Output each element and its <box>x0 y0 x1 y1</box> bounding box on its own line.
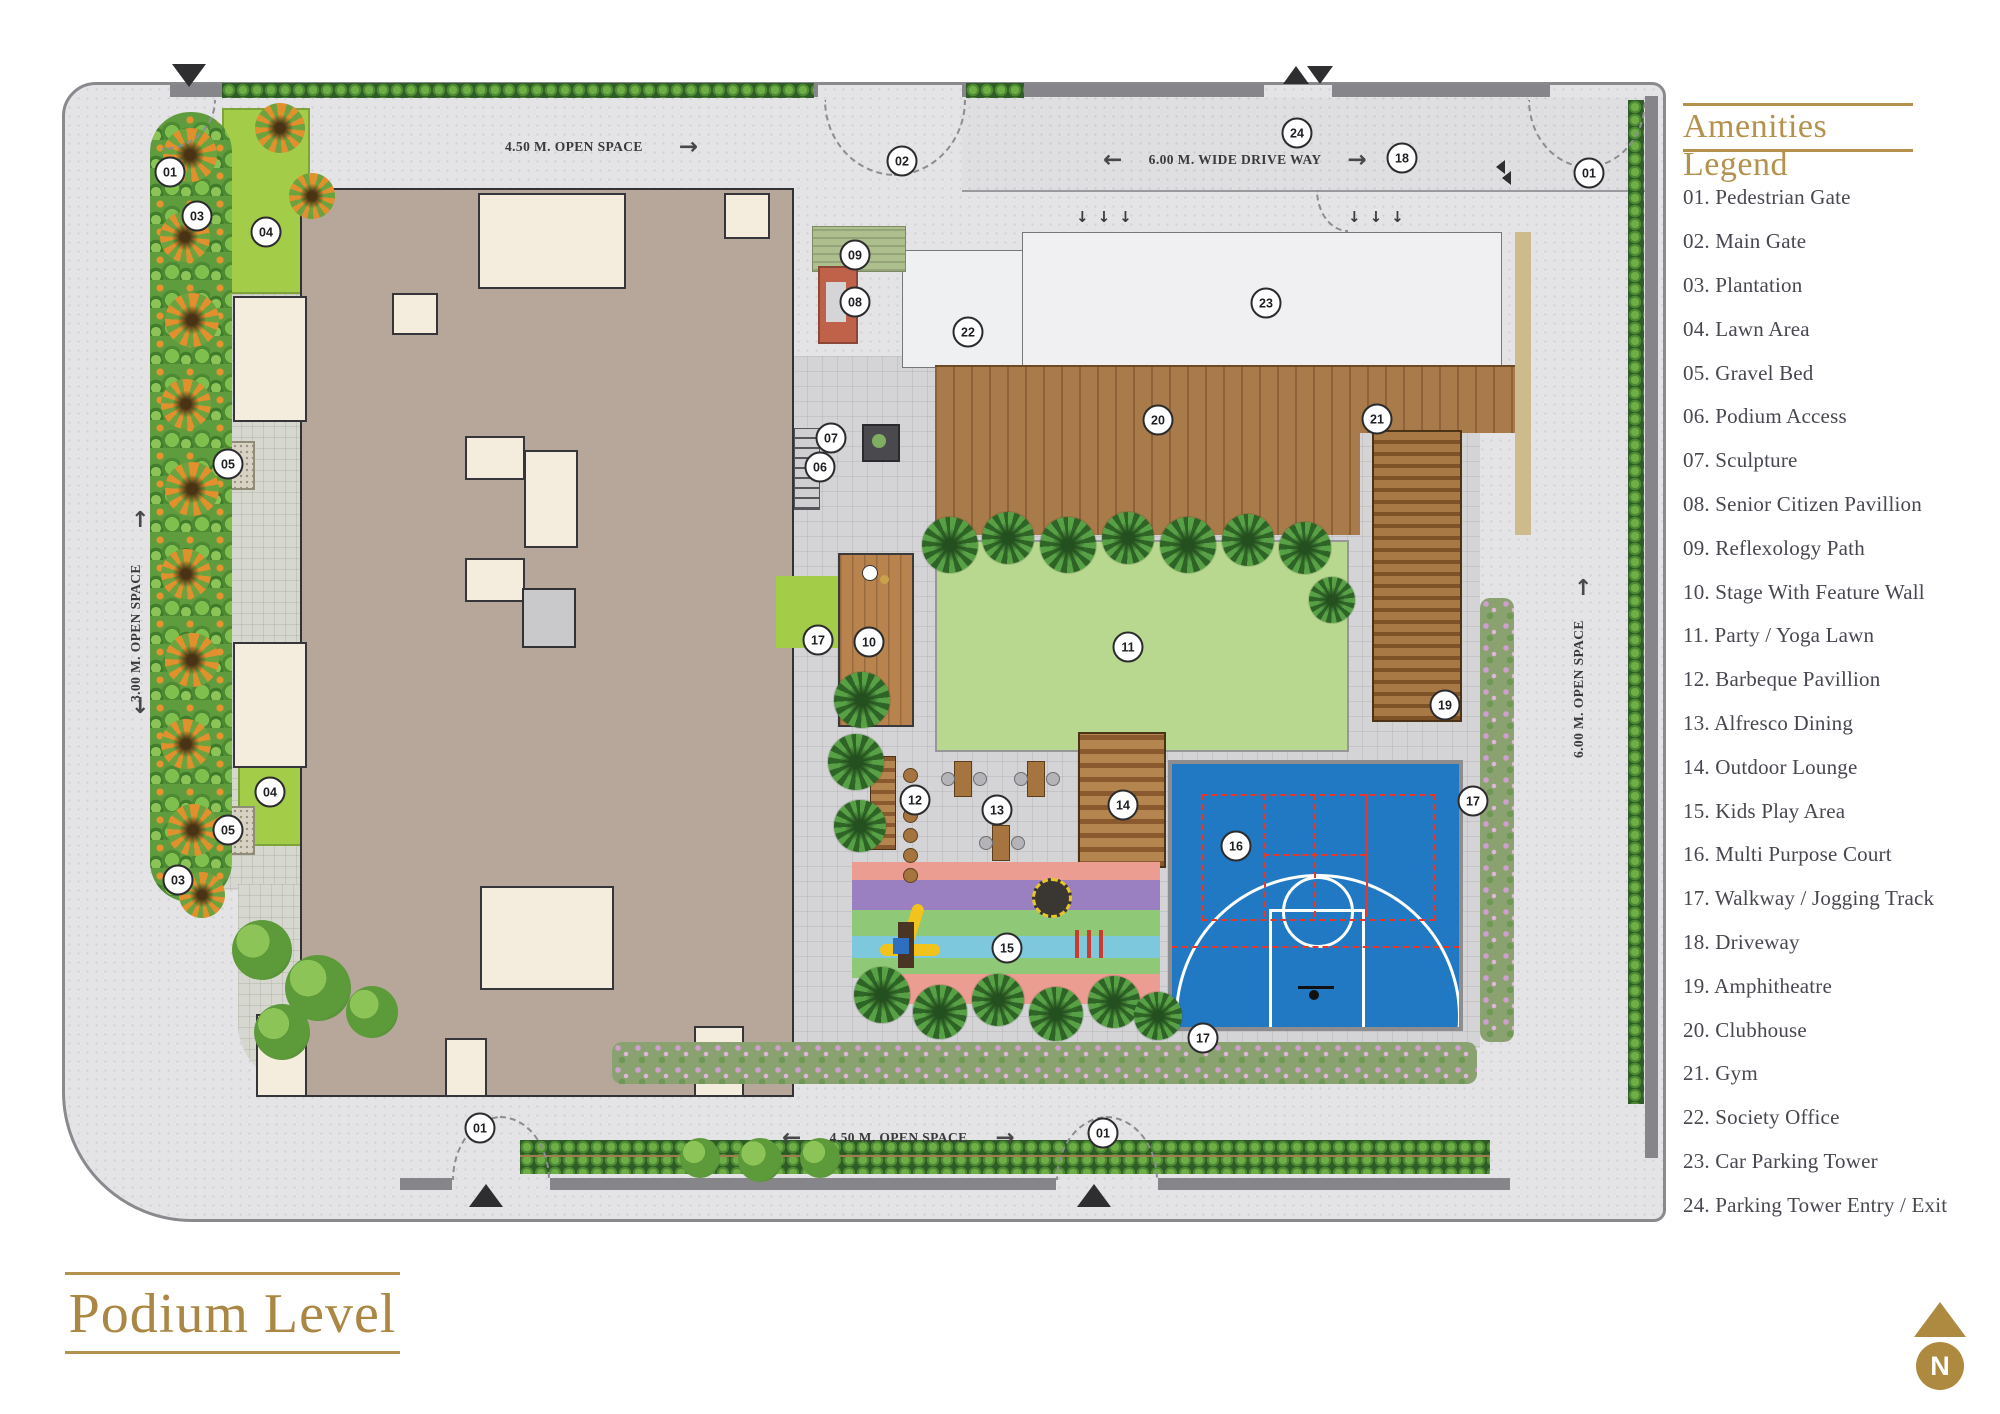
label-top-open-space: 4.50 M. OPEN SPACE → <box>505 139 699 155</box>
legend-item-15: 15. Kids Play Area <box>1683 789 1983 833</box>
legend-item-01: 01. Pedestrian Gate <box>1683 176 1983 220</box>
gate-direction-triangle-icon <box>1077 1184 1111 1207</box>
climber-bar-icon-2 <box>1087 930 1091 958</box>
building-court-a <box>392 293 438 335</box>
compound-wall-right <box>1645 96 1658 1158</box>
palm-tree-icon <box>1222 514 1274 566</box>
badminton-line-solid <box>1366 794 1368 917</box>
stool-icon <box>903 828 918 843</box>
label-left-open-space-text: 3.00 M. OPEN SPACE <box>128 564 144 702</box>
building-wing-lower <box>233 642 307 768</box>
palm-tree-icon <box>922 517 978 573</box>
palm-tree-icon <box>982 512 1034 564</box>
plan-marker-09: 09 <box>840 240 871 271</box>
arrow-right-icon: → <box>996 1131 1016 1145</box>
gate-direction-triangle-icon <box>469 1184 503 1207</box>
plan-marker-05: 05 <box>213 449 244 480</box>
legend-item-21: 21. Gym <box>1683 1052 1983 1096</box>
arrow-right-icon: → <box>679 140 699 154</box>
flowering-tree-icon <box>165 633 219 687</box>
plan-marker-02: 02 <box>887 146 918 177</box>
legend-item-06: 06. Podium Access <box>1683 395 1983 439</box>
legend-item-08: 08. Senior Citizen Pavillion <box>1683 483 1983 527</box>
parking-entry-arrows-icon: ↓↓↓ <box>1348 208 1413 226</box>
palm-tree-icon <box>1029 987 1083 1041</box>
palm-tree-icon <box>1134 992 1182 1040</box>
gate-direction-triangle-icon <box>1502 171 1511 185</box>
plan-marker-17: 17 <box>1188 1023 1219 1054</box>
building-court-top <box>478 193 626 289</box>
plan-marker-06: 06 <box>805 452 836 483</box>
stool-icon <box>903 868 918 883</box>
palm-tree-icon <box>834 800 886 852</box>
site-plan-page: 4.50 M. OPEN SPACE → ← 6.00 M. WIDE DRIV… <box>0 0 2000 1414</box>
label-right-open-space: 6.00 M. OPEN SPACE <box>1571 618 1587 758</box>
palm-tree-icon <box>913 985 967 1039</box>
legend-item-04: 04. Lawn Area <box>1683 307 1983 351</box>
gate-direction-triangle-icon <box>1307 66 1333 84</box>
plan-marker-01: 01 <box>465 1113 496 1144</box>
stage-stool-icon <box>880 575 889 584</box>
legend-title: Amenities Legend <box>1683 108 1913 184</box>
bush-icon <box>346 986 398 1038</box>
legend-item-12: 12. Barbeque Pavillion <box>1683 658 1983 702</box>
legend-item-17: 17. Walkway / Jogging Track <box>1683 877 1983 921</box>
gate-direction-triangle-icon <box>172 64 206 87</box>
palm-tree-icon <box>1279 522 1331 574</box>
plan-marker-19: 19 <box>1430 690 1461 721</box>
bush-icon <box>738 1138 782 1182</box>
building-court-d <box>465 558 525 602</box>
palm-tree-icon <box>854 967 910 1023</box>
amphitheatre <box>1372 430 1462 722</box>
building-court-b <box>465 436 525 480</box>
arrow-left-icon: ← <box>782 1131 802 1145</box>
label-bottom-open-space-text: 4.50 M. OPEN SPACE <box>830 1130 968 1146</box>
climber-bar-icon-1 <box>1075 930 1079 958</box>
legend-item-07: 07. Sculpture <box>1683 439 1983 483</box>
palm-tree-icon <box>972 974 1024 1026</box>
flowering-tree-icon <box>255 103 305 153</box>
label-top-open-space-text: 4.50 M. OPEN SPACE <box>505 139 643 155</box>
flowering-tree-icon <box>161 379 211 429</box>
chair-icon <box>973 772 987 786</box>
legend-item-10: 10. Stage With Feature Wall <box>1683 570 1983 614</box>
court-hoop <box>1309 990 1319 1000</box>
plan-marker-04: 04 <box>255 777 286 808</box>
flowering-tree-icon <box>165 293 219 347</box>
badminton-line-mid <box>1264 854 1366 856</box>
north-arrow-icon <box>1914 1302 1966 1337</box>
label-left-open-space: 3.00 M. OPEN SPACE <box>128 552 144 702</box>
north-compass: N <box>1916 1342 1964 1390</box>
plan-marker-12: 12 <box>900 785 931 816</box>
legend-rule-bottom <box>1683 149 1913 152</box>
plan-marker-03: 03 <box>182 201 213 232</box>
chair-icon <box>941 772 955 786</box>
compound-wall-bottom-a <box>400 1178 452 1190</box>
legend-rule-top <box>1683 103 1913 106</box>
legend-item-13: 13. Alfresco Dining <box>1683 702 1983 746</box>
stool-icon <box>903 768 918 783</box>
label-right-open-space-text: 6.00 M. OPEN SPACE <box>1571 620 1587 758</box>
plan-title-rule-bottom <box>65 1351 400 1354</box>
legend-item-20: 20. Clubhouse <box>1683 1008 1983 1052</box>
legend-item-05: 05. Gravel Bed <box>1683 351 1983 395</box>
plan-marker-03: 03 <box>163 865 194 896</box>
plan-marker-01: 01 <box>1574 158 1605 189</box>
flowering-tree-icon <box>167 804 219 856</box>
chair-icon <box>979 836 993 850</box>
flowering-tree-icon <box>161 719 211 769</box>
plan-marker-07: 07 <box>816 423 847 454</box>
climber-bar-icon-3 <box>1099 930 1103 958</box>
label-bottom-open-space: ← 4.50 M. OPEN SPACE → <box>782 1130 1015 1146</box>
label-drive-way-text: 6.00 M. WIDE DRIVE WAY <box>1149 152 1322 168</box>
legend-item-23: 23. Car Parking Tower <box>1683 1140 1983 1184</box>
flower-bed-right <box>1480 598 1514 1042</box>
palm-tree-icon <box>834 672 890 728</box>
plan-marker-24: 24 <box>1282 118 1313 149</box>
plan-marker-08: 08 <box>840 287 871 318</box>
dining-table-icon <box>1027 761 1045 797</box>
palm-tree-icon <box>1088 976 1140 1028</box>
building-court-top-right <box>724 193 770 239</box>
palm-tree-icon <box>1040 517 1096 573</box>
legend-item-09: 09. Reflexology Path <box>1683 526 1983 570</box>
bush-icon <box>680 1138 720 1178</box>
plan-marker-04: 04 <box>251 217 282 248</box>
legend-item-11: 11. Party / Yoga Lawn <box>1683 614 1983 658</box>
chair-icon <box>1011 836 1025 850</box>
legend-item-03: 03. Plantation <box>1683 264 1983 308</box>
plan-title: Podium Level <box>65 1282 400 1346</box>
dining-table-icon <box>954 761 972 797</box>
legend-item-19: 19. Amphitheatre <box>1683 964 1983 1008</box>
sculpture <box>862 424 900 462</box>
plan-marker-01: 01 <box>1088 1118 1119 1149</box>
flower-bed-bottom <box>612 1042 1477 1084</box>
flowering-tree-icon <box>161 549 211 599</box>
chair-icon <box>1046 772 1060 786</box>
plan-marker-22: 22 <box>953 317 984 348</box>
compound-wall-top-right <box>1332 84 1550 97</box>
plan-marker-15: 15 <box>992 933 1023 964</box>
plan-marker-20: 20 <box>1143 405 1174 436</box>
stool-icon <box>903 848 918 863</box>
plan-marker-23: 23 <box>1251 288 1282 319</box>
gate-direction-triangle-icon <box>1283 66 1309 84</box>
fence-line-bottom <box>520 1155 1490 1157</box>
court-backboard <box>1298 986 1334 989</box>
compound-wall-bottom-b <box>550 1178 1056 1190</box>
stage-table-icon <box>862 565 878 581</box>
legend-item-22: 22. Society Office <box>1683 1096 1983 1140</box>
building-court-f <box>445 1038 487 1097</box>
palm-tree-icon <box>1102 512 1154 564</box>
plan-marker-14: 14 <box>1108 790 1139 821</box>
society-office-block <box>902 250 1024 368</box>
building-court-c <box>524 450 578 548</box>
arrow-up-icon: ↑ <box>1574 576 1592 601</box>
sculpture-plant-icon <box>872 434 886 448</box>
dining-table-icon <box>992 825 1010 861</box>
label-drive-way: ← 6.00 M. WIDE DRIVE WAY → <box>1103 152 1367 168</box>
plan-marker-13: 13 <box>982 795 1013 826</box>
legend-item-14: 14. Outdoor Lounge <box>1683 745 1983 789</box>
flowering-tree-icon <box>165 462 219 516</box>
plan-marker-05: 05 <box>213 815 244 846</box>
play-cube-icon <box>893 938 909 954</box>
plan-marker-10: 10 <box>854 627 885 658</box>
arrow-right-icon: → <box>1348 153 1368 167</box>
arrow-down-icon: ↓ <box>131 694 149 719</box>
plan-marker-17: 17 <box>1458 786 1489 817</box>
multi-purpose-court <box>1168 760 1463 1031</box>
amenities-legend-list: 01. Pedestrian Gate02. Main Gate03. Plan… <box>1683 176 1983 1227</box>
legend-item-02: 02. Main Gate <box>1683 220 1983 264</box>
plan-marker-21: 21 <box>1362 404 1393 435</box>
palm-tree-icon <box>828 734 884 790</box>
hedge-top-small <box>966 83 1024 98</box>
compound-wall-bottom-c <box>1158 1178 1510 1190</box>
arrow-left-icon: ← <box>1103 153 1123 167</box>
palm-tree-icon <box>1160 517 1216 573</box>
flowering-tree-icon <box>289 173 335 219</box>
arrow-up-icon: ↑ <box>131 508 149 533</box>
spinner-toy-icon <box>1032 878 1072 918</box>
legend-item-24: 24. Parking Tower Entry / Exit <box>1683 1183 1983 1227</box>
plan-marker-16: 16 <box>1221 831 1252 862</box>
legend-item-16: 16. Multi Purpose Court <box>1683 833 1983 877</box>
clubhouse-deck-upper <box>935 365 1515 433</box>
play-band-purple <box>852 880 1160 914</box>
bush-icon <box>232 920 292 980</box>
legend-item-18: 18. Driveway <box>1683 921 1983 965</box>
bush-icon <box>254 1004 310 1060</box>
feature-wall-strip <box>1515 232 1531 535</box>
hedge-top <box>222 83 814 98</box>
plan-title-rule-top <box>65 1272 400 1275</box>
palm-tree-icon <box>1309 577 1355 623</box>
chair-icon <box>1014 772 1028 786</box>
building-core <box>522 588 576 648</box>
building-wing-upper <box>233 296 307 422</box>
plan-marker-18: 18 <box>1387 143 1418 174</box>
hedge-right <box>1628 100 1644 1104</box>
parking-entry-arrows-icon: ↓↓↓ <box>1076 208 1141 226</box>
plan-marker-01: 01 <box>155 157 186 188</box>
plan-marker-11: 11 <box>1113 632 1144 663</box>
building-court-e <box>480 886 614 990</box>
plan-marker-17: 17 <box>803 625 834 656</box>
badminton-line-bottom <box>1172 946 1459 948</box>
